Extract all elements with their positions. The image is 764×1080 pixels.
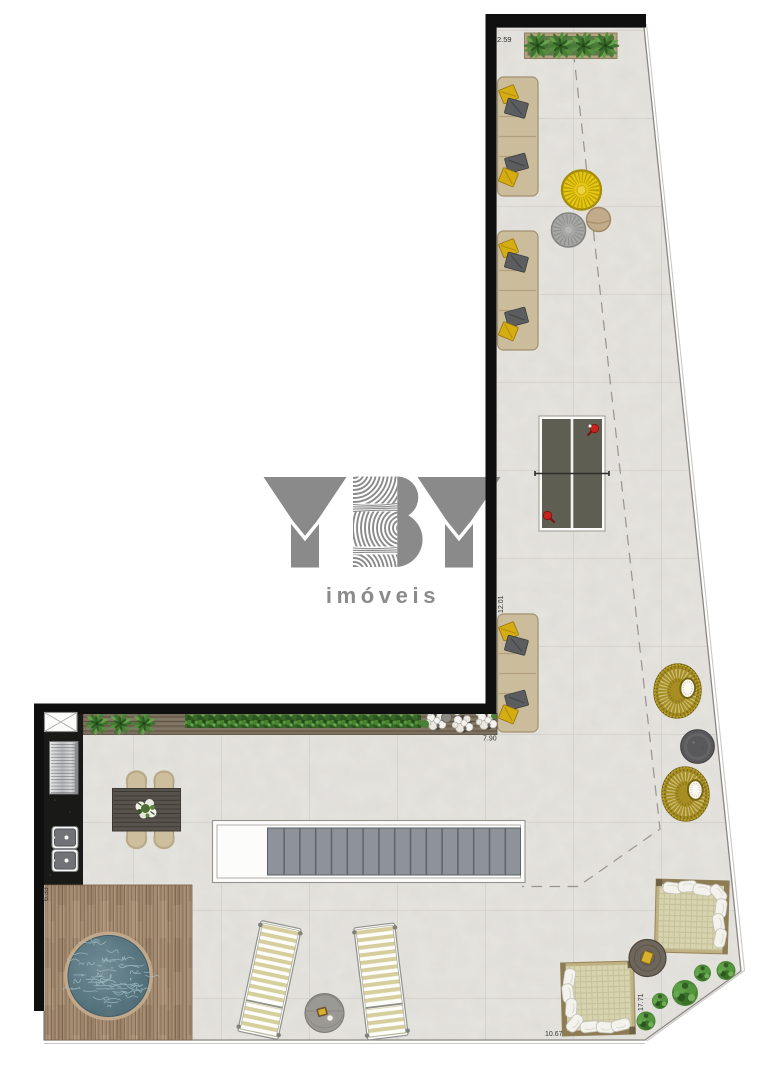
svg-text:2.59: 2.59 — [497, 35, 512, 44]
svg-text:imóveis: imóveis — [326, 583, 440, 608]
svg-text:12.01: 12.01 — [498, 595, 505, 613]
svg-text:7.90: 7.90 — [483, 736, 497, 743]
svg-text:17.71: 17.71 — [638, 993, 645, 1011]
svg-text:6.33: 6.33 — [43, 887, 50, 901]
svg-text:10.67: 10.67 — [545, 1031, 563, 1038]
